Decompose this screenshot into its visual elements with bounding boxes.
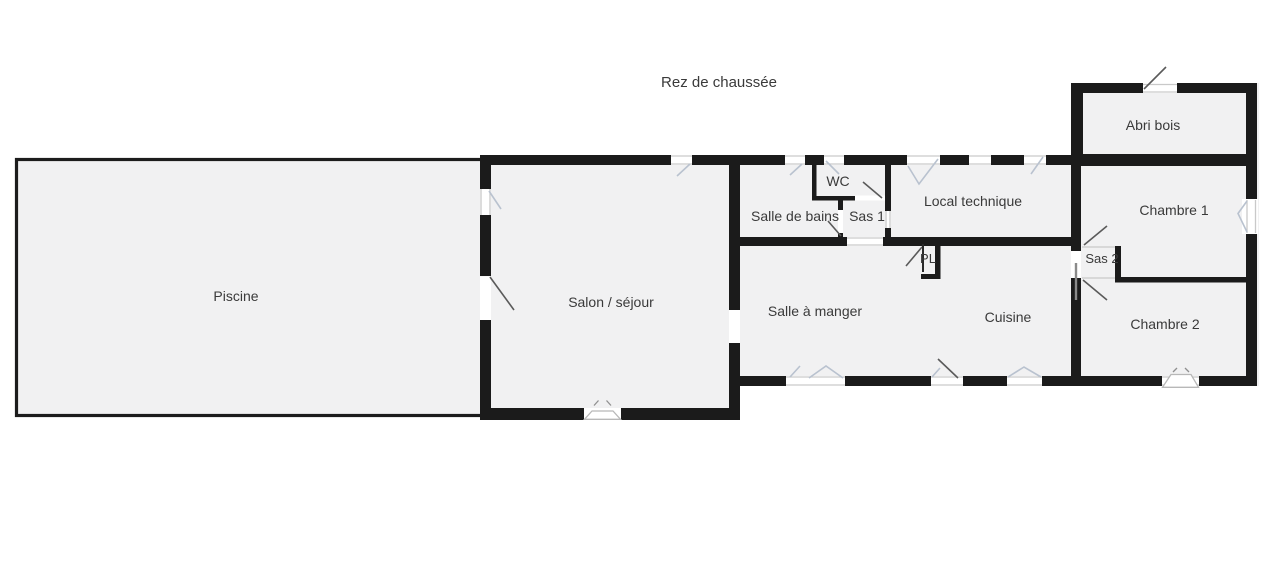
svg-text:WC: WC [826,173,849,189]
svg-text:PL: PL [920,251,936,266]
svg-text:Sas 1: Sas 1 [849,208,885,224]
svg-text:Abri bois: Abri bois [1126,117,1180,133]
svg-text:Salle de bains: Salle de bains [751,208,839,224]
svg-text:Rez de chaussée: Rez de chaussée [661,74,777,91]
svg-text:Salon / séjour: Salon / séjour [568,294,654,310]
svg-text:Cuisine: Cuisine [985,309,1032,325]
svg-text:Local technique: Local technique [924,193,1022,209]
svg-text:Sas 2: Sas 2 [1085,251,1118,266]
svg-text:Piscine: Piscine [213,288,258,304]
svg-text:Salle à manger: Salle à manger [768,303,863,319]
svg-text:Chambre 2: Chambre 2 [1130,316,1199,332]
svg-text:Chambre 1: Chambre 1 [1139,202,1208,218]
